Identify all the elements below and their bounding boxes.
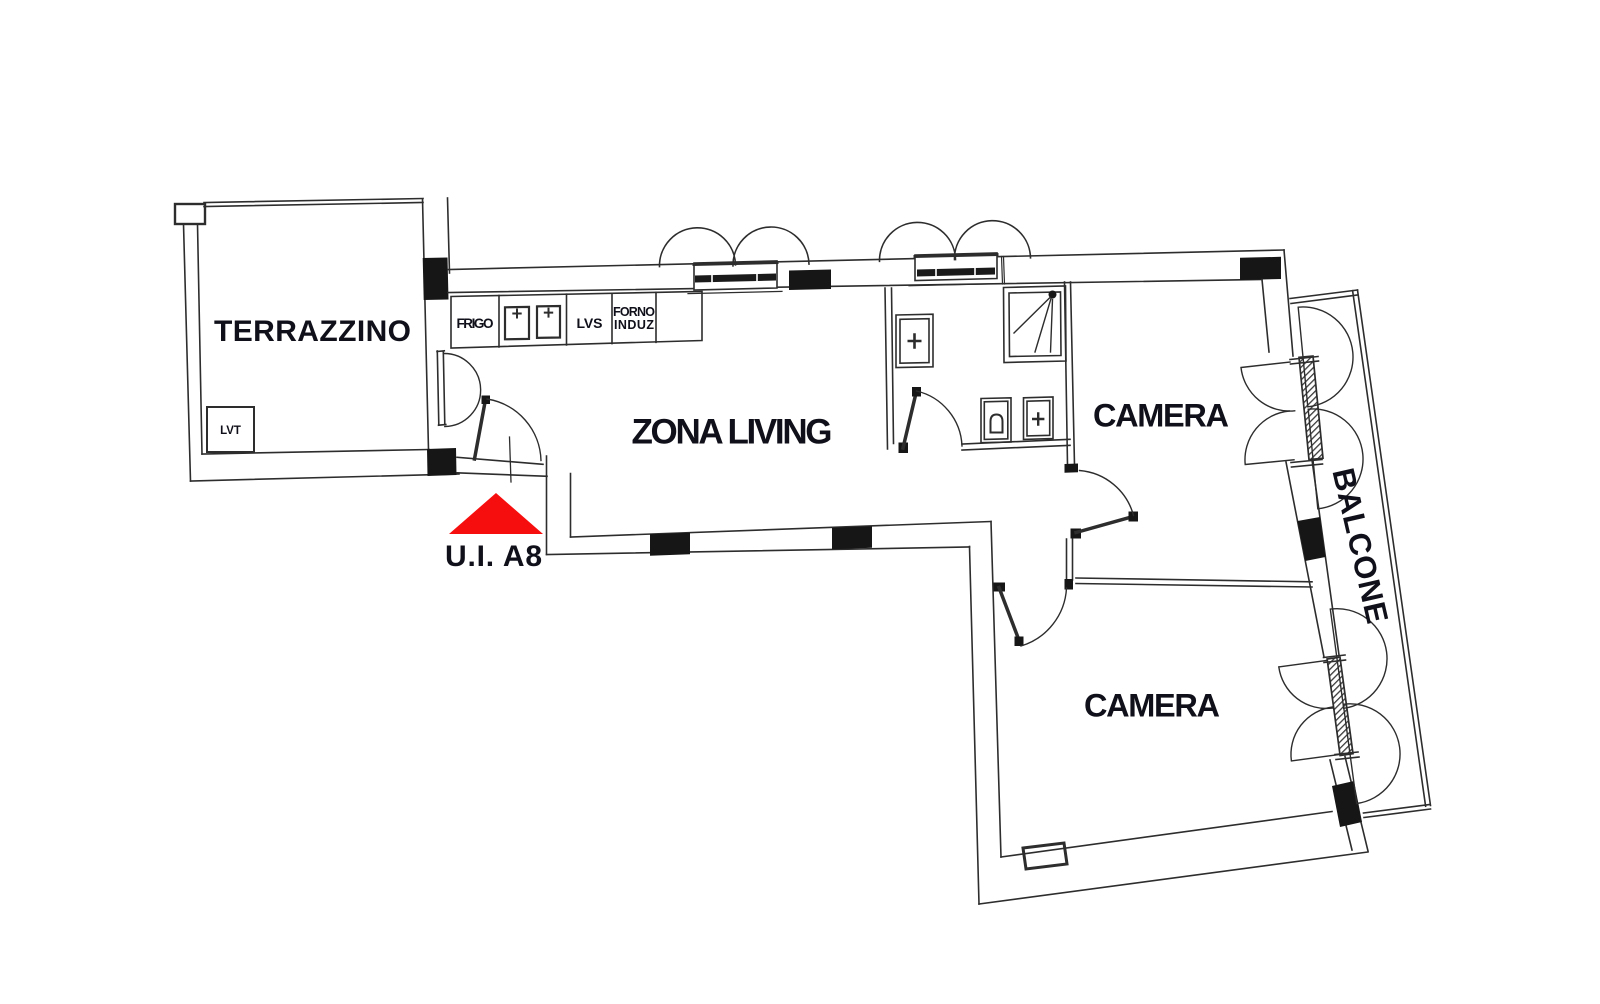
- svg-text:FRIGO: FRIGO: [457, 316, 494, 331]
- svg-text:INDUZ: INDUZ: [614, 318, 654, 332]
- svg-text:TERRAZZINO: TERRAZZINO: [214, 315, 411, 348]
- svg-text:FORNO: FORNO: [613, 305, 655, 319]
- svg-text:LVT: LVT: [220, 425, 241, 437]
- svg-text:BALCONE: BALCONE: [1325, 465, 1395, 627]
- svg-text:LVS: LVS: [577, 315, 603, 331]
- svg-text:CAMERA: CAMERA: [1093, 398, 1229, 434]
- svg-text:U.I. A8: U.I. A8: [445, 540, 542, 573]
- svg-text:CAMERA: CAMERA: [1084, 688, 1220, 724]
- svg-text:ZONA LIVING: ZONA LIVING: [632, 413, 833, 452]
